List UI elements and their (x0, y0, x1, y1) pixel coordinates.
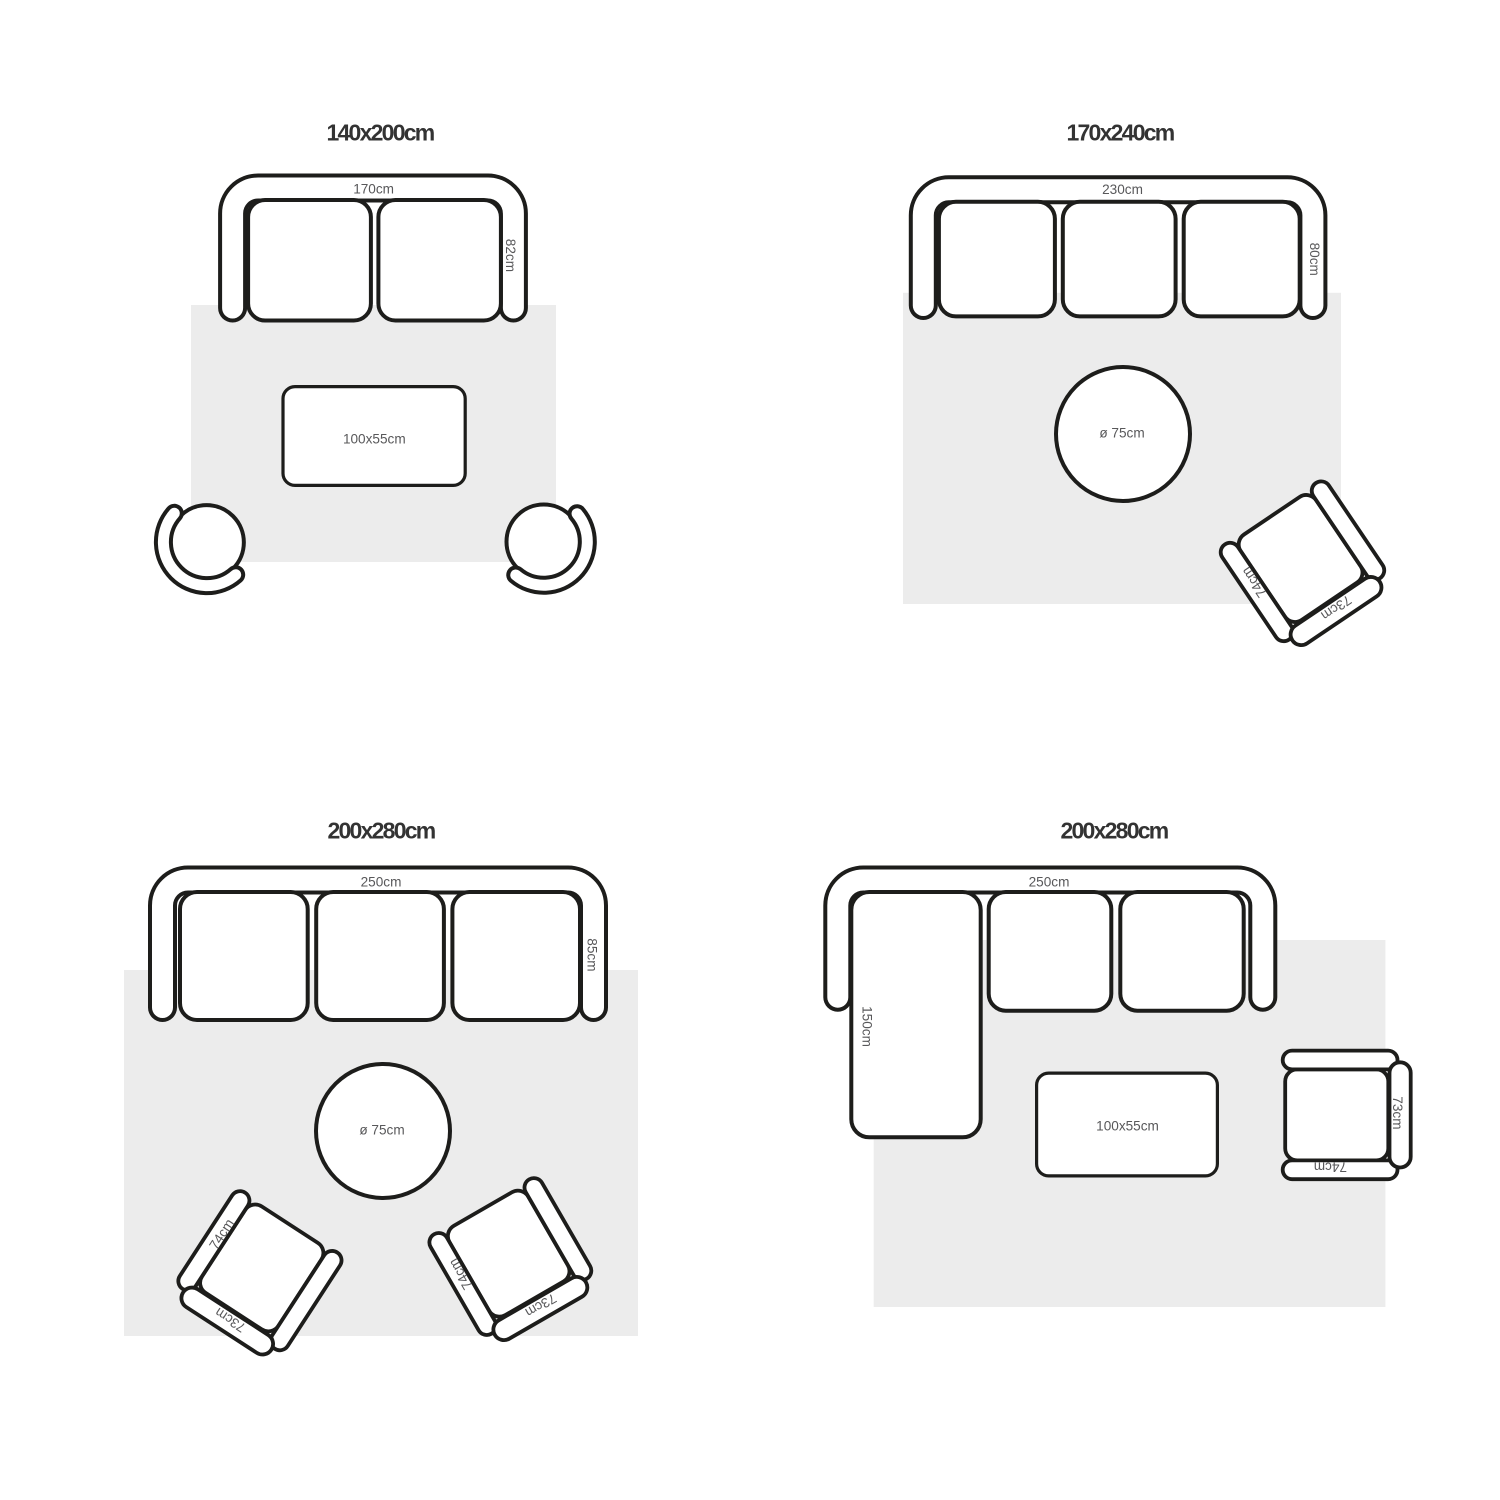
svg-text:140x200cm: 140x200cm (326, 119, 434, 145)
svg-text:85cm: 85cm (585, 938, 600, 971)
svg-text:82cm: 82cm (503, 239, 518, 272)
svg-text:80cm: 80cm (1307, 243, 1322, 276)
svg-text:100x55cm: 100x55cm (343, 431, 406, 446)
svg-text:200x280cm: 200x280cm (1060, 817, 1168, 843)
svg-text:170cm: 170cm (353, 182, 394, 197)
svg-text:73cm: 73cm (1390, 1096, 1405, 1129)
svg-text:230cm: 230cm (1102, 182, 1143, 197)
svg-text:250cm: 250cm (361, 874, 402, 889)
svg-text:100x55cm: 100x55cm (1096, 1119, 1159, 1134)
svg-text:200x280cm: 200x280cm (327, 817, 435, 843)
svg-text:250cm: 250cm (1029, 874, 1070, 889)
svg-text:170x240cm: 170x240cm (1066, 119, 1174, 145)
svg-text:ø 75cm: ø 75cm (1099, 425, 1144, 440)
svg-text:74cm: 74cm (1314, 1159, 1347, 1174)
svg-text:150cm: 150cm (860, 1006, 875, 1047)
svg-text:ø 75cm: ø 75cm (359, 1122, 404, 1137)
